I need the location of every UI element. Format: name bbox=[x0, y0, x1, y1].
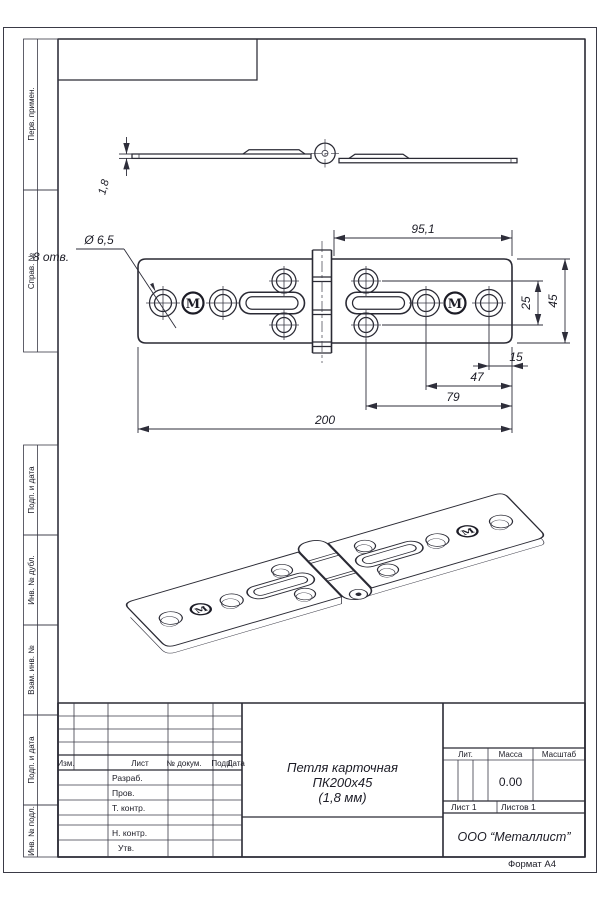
margin-label-inv-podl: Инв. № подл. bbox=[27, 806, 36, 856]
tb-company: ООО “Металлист” bbox=[458, 830, 572, 844]
tb-sheets: Листов 1 bbox=[501, 802, 536, 812]
svg-text:M: M bbox=[186, 297, 200, 312]
part-name-line2: ПК200х45 bbox=[313, 775, 374, 790]
dim-95-label: 95,1 bbox=[411, 222, 434, 236]
dim-45-label: 45 bbox=[546, 294, 560, 308]
tb-role-nkontr: Н. контр. bbox=[112, 828, 147, 838]
margin-label-inv-dubl: Инв. № дубл. bbox=[27, 555, 36, 605]
tb-sheet: Лист 1 bbox=[451, 802, 477, 812]
format-note: Формат А4 bbox=[508, 859, 556, 870]
margin-label-perv-primen: Перв. примен. bbox=[27, 87, 36, 140]
tb-mass-value: 0.00 bbox=[499, 775, 523, 789]
tb-header-list: Лист bbox=[131, 759, 149, 768]
dim-hole-count-label: 8 отв. bbox=[33, 250, 69, 264]
technical-drawing: Перв. примен. Справ. № Подп. и дата Инв.… bbox=[0, 0, 600, 900]
tb-role-utv: Утв. bbox=[118, 843, 134, 853]
tb-role-razrab: Разраб. bbox=[112, 773, 143, 783]
svg-text:M: M bbox=[448, 297, 462, 312]
tb-header-izm: Изм. bbox=[57, 759, 74, 768]
tb-role-prov: Пров. bbox=[112, 788, 134, 798]
dim-47-label: 47 bbox=[470, 370, 485, 384]
dim-79-label: 79 bbox=[446, 390, 460, 404]
tb-scale-label: Масштаб bbox=[542, 750, 577, 759]
margin-label-vzam-inv: Взам. инв. № bbox=[27, 645, 36, 695]
part-name-line3: (1,8 мм) bbox=[318, 790, 366, 805]
drawing-sheet: Перв. примен. Справ. № Подп. и дата Инв.… bbox=[0, 0, 600, 900]
dim-diameter-label: Ø 6,5 bbox=[83, 233, 114, 247]
margin-label-podp-data-2: Подп. и дата bbox=[27, 736, 36, 784]
tb-mass-label: Масса bbox=[499, 750, 523, 759]
tb-header-data: Дата bbox=[227, 759, 245, 768]
dim-25-label: 25 bbox=[519, 296, 533, 311]
dim-200-label: 200 bbox=[314, 413, 335, 427]
tb-header-dokum: № докум. bbox=[166, 759, 201, 768]
tb-role-tkontr: Т. контр. bbox=[112, 803, 145, 813]
tb-lit-label: Лит. bbox=[458, 750, 473, 759]
part-name-line1: Петля карточная bbox=[287, 760, 398, 775]
dim-15-label: 15 bbox=[509, 350, 523, 364]
margin-label-podp-data-1: Подп. и дата bbox=[27, 466, 36, 514]
